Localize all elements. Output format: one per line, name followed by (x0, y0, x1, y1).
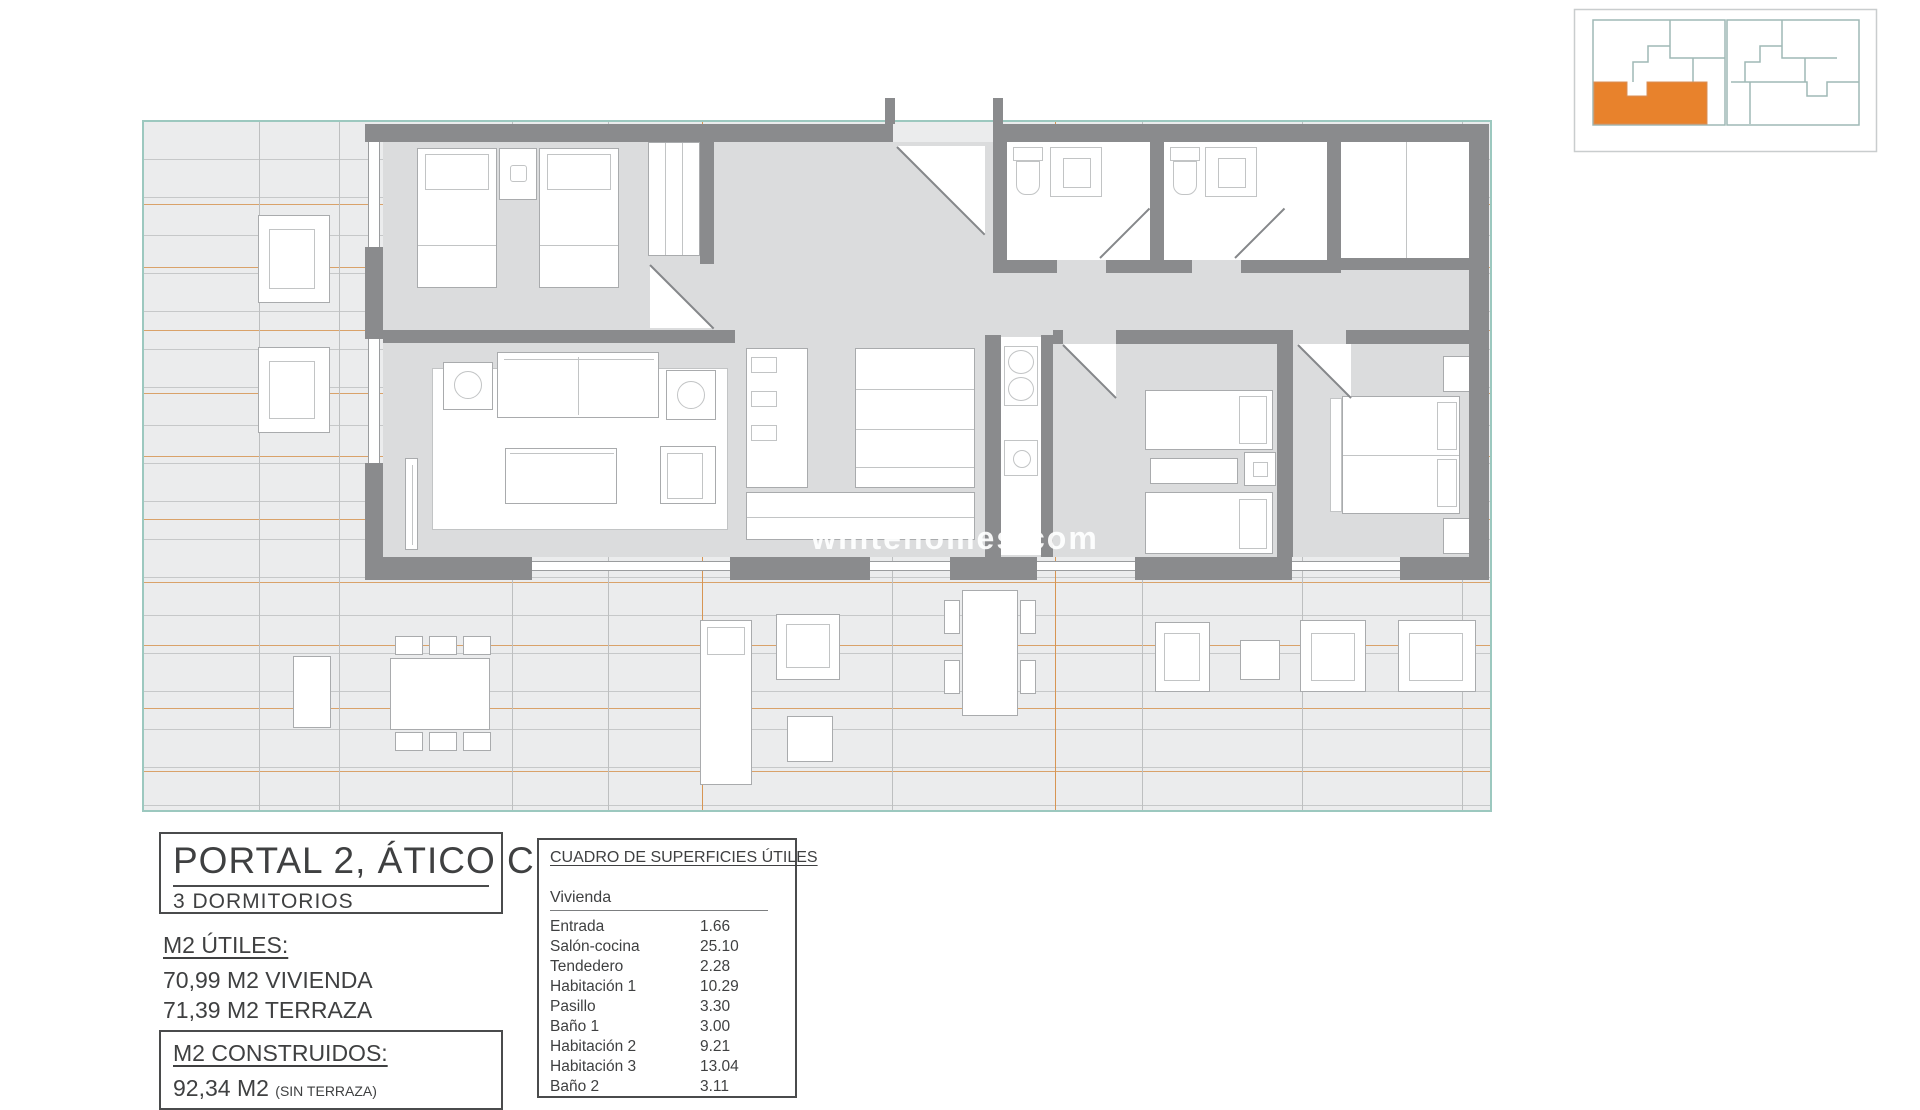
kitchen-sink (1004, 346, 1038, 406)
sun-lounger (700, 620, 752, 785)
entry-porch-wall (885, 98, 895, 124)
burner (1013, 450, 1031, 468)
drawer (751, 425, 777, 441)
counter-line (856, 389, 974, 390)
armchair (660, 446, 716, 504)
wall-segment (1053, 330, 1063, 344)
window (368, 142, 380, 247)
toilet-tank (1013, 147, 1043, 161)
areas-table-rows: Entrada1.66Salón-cocina25.10Tendedero2.2… (550, 917, 784, 1097)
sofa-cushion-line (578, 357, 579, 415)
wall-segment (993, 142, 1007, 260)
tendedero-floor (1341, 142, 1469, 258)
m2-construidos-block: M2 CONSTRUIDOS: 92,34 M2 (SIN TERRAZA) (159, 1030, 503, 1110)
table-row: Habitación 110.29 (550, 977, 784, 997)
closet-divider-line (1406, 142, 1407, 258)
nightstand (499, 148, 537, 200)
m2-utiles-heading: M2 ÚTILES: (163, 932, 507, 959)
radiator (405, 458, 418, 550)
row-label: Baño 2 (550, 1077, 700, 1097)
blanket-line (418, 245, 496, 246)
bed-single (417, 148, 497, 288)
kitchen-counter (855, 348, 975, 488)
table-lamp (454, 371, 482, 399)
wardrobe (648, 142, 700, 256)
table-row: Salón-cocina25.10 (550, 937, 784, 957)
watermark: whitehomes.com (805, 520, 1105, 557)
wall-segment (700, 142, 714, 264)
wall-segment (1135, 557, 1292, 580)
wash-basin (1063, 158, 1091, 188)
terrace-armchair (258, 215, 330, 303)
wall-segment (365, 463, 383, 559)
m2-utiles-block: M2 ÚTILES: 70,99 M2 VIVIENDA 71,39 M2 TE… (163, 932, 507, 1026)
nightstand (1244, 452, 1276, 486)
blanket-line (540, 245, 618, 246)
table-row: Baño 13.00 (550, 1017, 784, 1037)
row-value: 2.28 (700, 957, 760, 977)
dining-chair (429, 732, 457, 751)
wardrobe-line (665, 143, 666, 255)
m2-utiles-terraza: 71,39 M2 TERRAZA (163, 995, 507, 1025)
lamp (510, 165, 527, 182)
bed-double (1342, 396, 1460, 514)
row-value: 3.30 (700, 997, 760, 1017)
row-label: Entrada (550, 917, 700, 937)
sofa-back-line (504, 359, 654, 360)
dining-chair (395, 732, 423, 751)
side-table (666, 370, 716, 420)
wall-segment (1341, 258, 1469, 270)
row-value: 25.10 (700, 937, 760, 957)
plan-title: PORTAL 2, ÁTICO C (173, 840, 489, 887)
row-label: Habitación 3 (550, 1057, 700, 1077)
areas-table-title: CUADRO DE SUPERFICIES ÚTILES (550, 849, 784, 867)
nightstand (1443, 356, 1471, 392)
row-value: 3.00 (700, 1017, 760, 1037)
table-row: Habitación 29.21 (550, 1037, 784, 1057)
bedroom-bench (1150, 458, 1238, 484)
wall-segment (1277, 330, 1293, 557)
bed-split-line (1343, 455, 1459, 456)
pillow (547, 154, 611, 190)
lounger-head (707, 627, 745, 655)
armchair-seat (269, 229, 315, 289)
terrace-lounge-chair (776, 614, 840, 680)
dining-chair (463, 732, 491, 751)
table-line (510, 453, 614, 454)
wall-segment (1469, 124, 1489, 580)
wall-segment (950, 557, 1037, 580)
wall-segment (1400, 557, 1489, 580)
dining-chair (429, 636, 457, 655)
window (368, 339, 380, 463)
cooktop (1004, 440, 1038, 476)
wall-segment (730, 557, 870, 580)
wall-segment (1241, 260, 1341, 273)
bistro-chair (944, 600, 960, 634)
floor-plan-sheet: whitehomes.com PORTAL 2, ÁTICO C 3 DORMI… (0, 0, 1920, 1080)
side-table (443, 362, 493, 410)
kitchen-counter (746, 348, 808, 488)
bistro-chair (1020, 660, 1036, 694)
lamp (1253, 462, 1268, 477)
sofa (497, 352, 659, 418)
terrace-armchair (258, 347, 330, 433)
m2-construidos-value: 92,34 M2 (SIN TERRAZA) (173, 1073, 489, 1103)
counter-line (856, 429, 974, 430)
wash-basin (1218, 158, 1246, 188)
row-label: Tendedero (550, 957, 700, 977)
plan-subtitle: 3 DORMITORIOS (173, 890, 489, 914)
pillow (1239, 499, 1267, 549)
key-plan (1573, 8, 1878, 153)
wall-segment (1116, 330, 1277, 344)
sink-bowl (1008, 350, 1034, 374)
row-value: 10.29 (700, 977, 760, 997)
row-value: 1.66 (700, 917, 760, 937)
armchair-seat (269, 361, 315, 419)
armchair-seat (1311, 633, 1355, 681)
table-row: Pasillo3.30 (550, 997, 784, 1017)
sliding-door-window (532, 561, 730, 571)
sink-bowl (1008, 377, 1034, 401)
row-value: 13.04 (700, 1057, 760, 1077)
deck-line (339, 122, 340, 810)
drawer (751, 357, 777, 373)
wall-segment (1106, 260, 1192, 273)
island-line (747, 517, 974, 518)
table-row: Habitación 313.04 (550, 1057, 784, 1077)
areas-table: CUADRO DE SUPERFICIES ÚTILES Vivienda En… (537, 838, 797, 1098)
pillow (1437, 402, 1457, 450)
wall-segment (365, 124, 893, 142)
m2-construidos-note: (SIN TERRAZA) (275, 1083, 377, 1099)
window (1037, 561, 1135, 571)
row-value: 9.21 (700, 1037, 760, 1057)
row-label: Habitación 2 (550, 1037, 700, 1057)
row-label: Habitación 1 (550, 977, 700, 997)
wall-segment (365, 247, 383, 339)
coffee-table (505, 448, 617, 504)
wall-segment (993, 260, 1057, 273)
dining-chair (395, 636, 423, 655)
counter-line (856, 467, 974, 468)
toilet-bowl (1173, 161, 1197, 195)
bed-single (539, 148, 619, 288)
wardrobe-line (682, 143, 683, 255)
terrace-armchair (1300, 620, 1366, 692)
dining-table (390, 658, 490, 730)
row-label: Baño 1 (550, 1017, 700, 1037)
pillow (1239, 396, 1267, 444)
bed-single (1145, 492, 1273, 554)
wall-segment (1327, 142, 1341, 273)
areas-table-group: Vivienda (550, 889, 768, 911)
table-row: Baño 23.11 (550, 1077, 784, 1097)
drawer (751, 391, 777, 407)
chair-seat (786, 624, 830, 668)
wall-segment (993, 124, 1487, 142)
bed-single (1145, 390, 1273, 450)
armchair-seat (1409, 633, 1463, 681)
dining-chair (463, 636, 491, 655)
toilet-bowl (1016, 161, 1040, 195)
rug-edge (1330, 398, 1342, 512)
entry-porch-wall (993, 98, 1003, 124)
armchair-seat (667, 453, 703, 499)
table-row: Tendedero2.28 (550, 957, 784, 977)
m2-utiles-vivienda: 70,99 M2 VIVIENDA (163, 965, 507, 995)
title-block: PORTAL 2, ÁTICO C 3 DORMITORIOS (159, 832, 503, 914)
bistro-table (962, 590, 1018, 716)
m2-construidos-heading: M2 CONSTRUIDOS: (173, 1040, 489, 1067)
wall-segment (1150, 142, 1164, 260)
nightstand (1443, 518, 1471, 554)
radiator-line (412, 465, 413, 545)
wall-segment (1346, 330, 1469, 344)
terrace-side-table (1240, 640, 1280, 680)
terrace-bench (293, 656, 331, 728)
pillow (1437, 459, 1457, 507)
window (1292, 561, 1400, 571)
bath-vanity (1050, 147, 1102, 197)
bistro-chair (1020, 600, 1036, 634)
row-label: Pasillo (550, 997, 700, 1017)
row-value: 3.11 (700, 1077, 760, 1097)
terrace-armchair (1398, 620, 1476, 692)
bath-vanity (1205, 147, 1257, 197)
table-row: Entrada1.66 (550, 917, 784, 937)
key-plan-drawing (1573, 8, 1878, 153)
terrace-armchair (1155, 622, 1210, 692)
bistro-chair (944, 660, 960, 694)
row-label: Salón-cocina (550, 937, 700, 957)
wall-segment (365, 557, 532, 580)
ottoman (787, 716, 833, 762)
wall-segment (383, 330, 735, 343)
pillow (425, 154, 489, 190)
window (870, 561, 950, 571)
toilet-tank (1170, 147, 1200, 161)
armchair-seat (1164, 633, 1200, 681)
table-lamp (677, 381, 705, 409)
